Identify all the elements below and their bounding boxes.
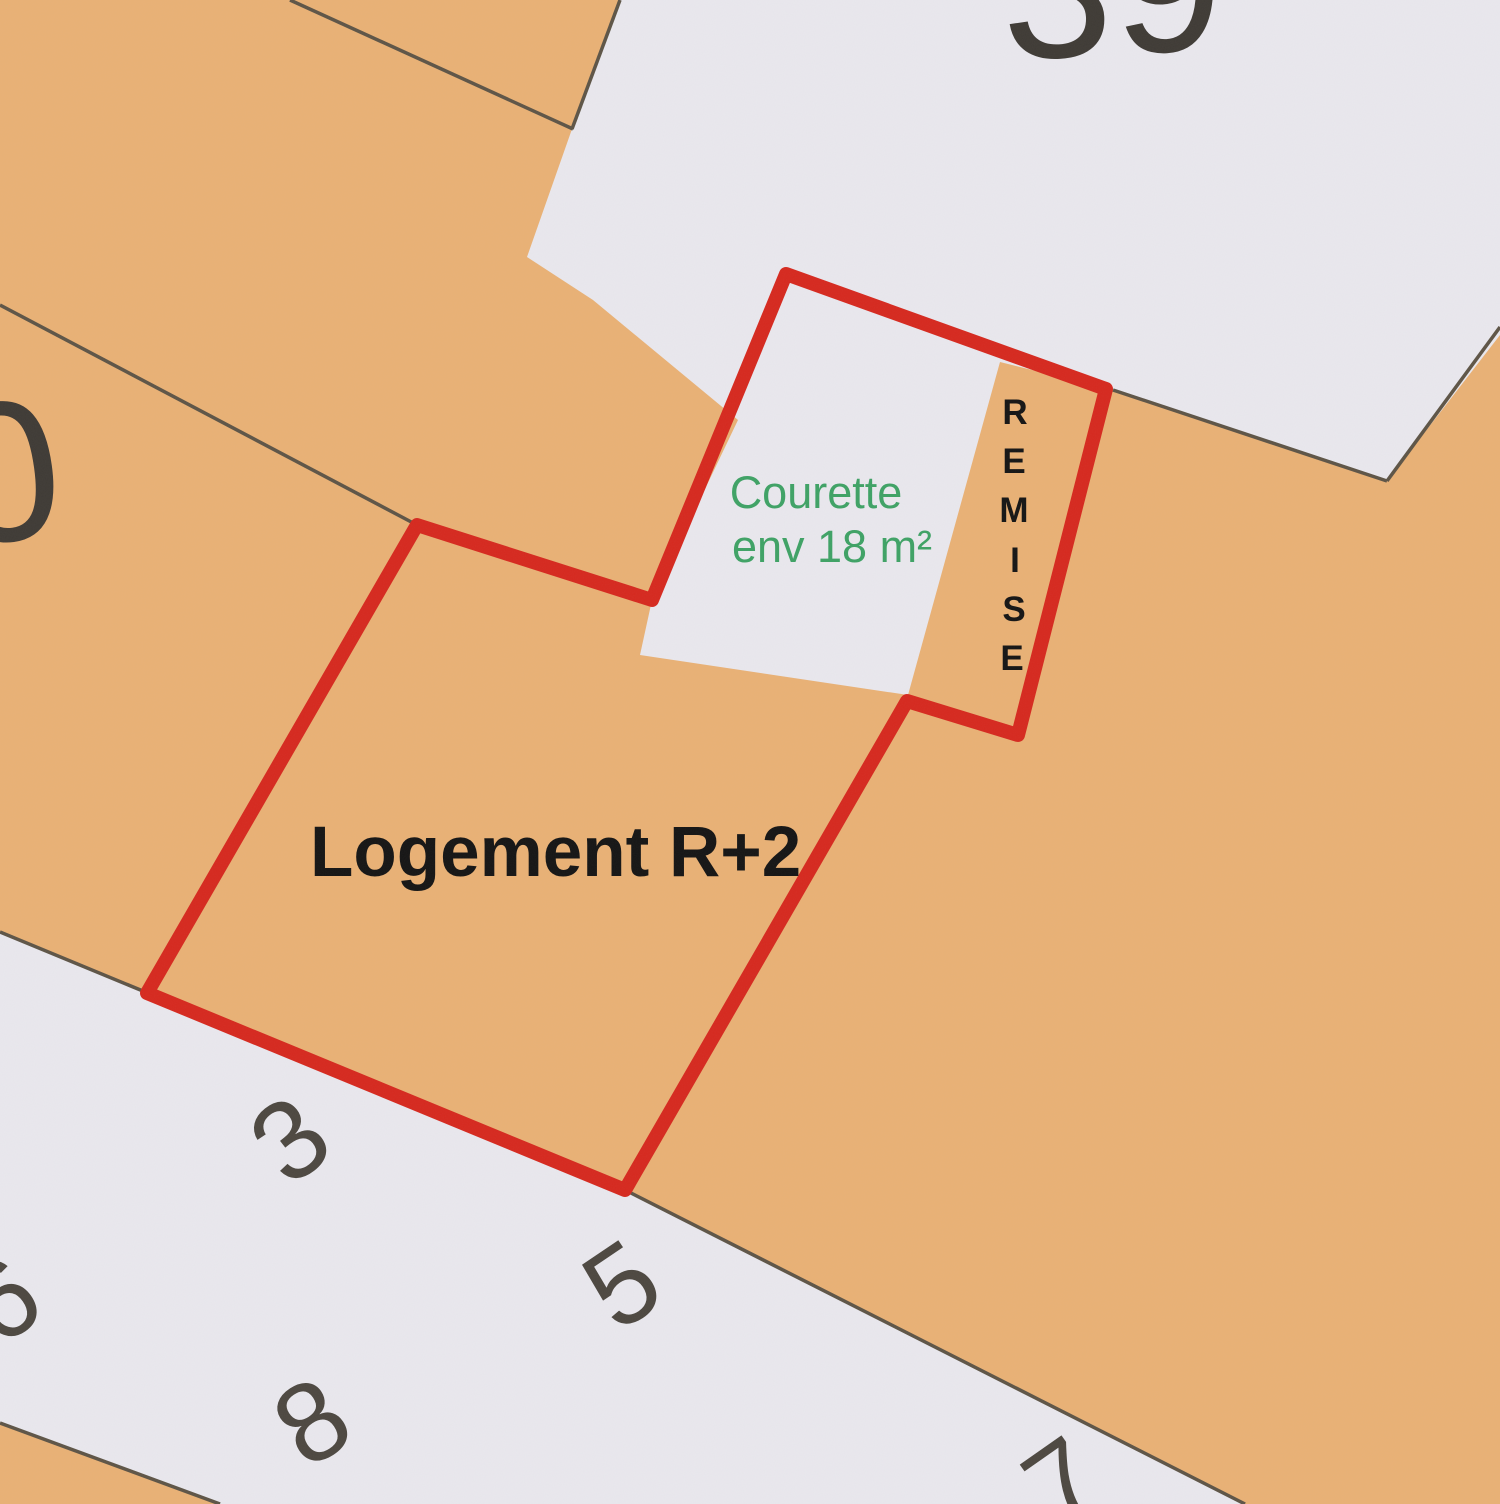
cadastral-map: 39 0 Courette env 18 m² R E M I S E Loge… bbox=[0, 0, 1500, 1504]
scan-grain-overlay bbox=[0, 0, 1500, 1504]
